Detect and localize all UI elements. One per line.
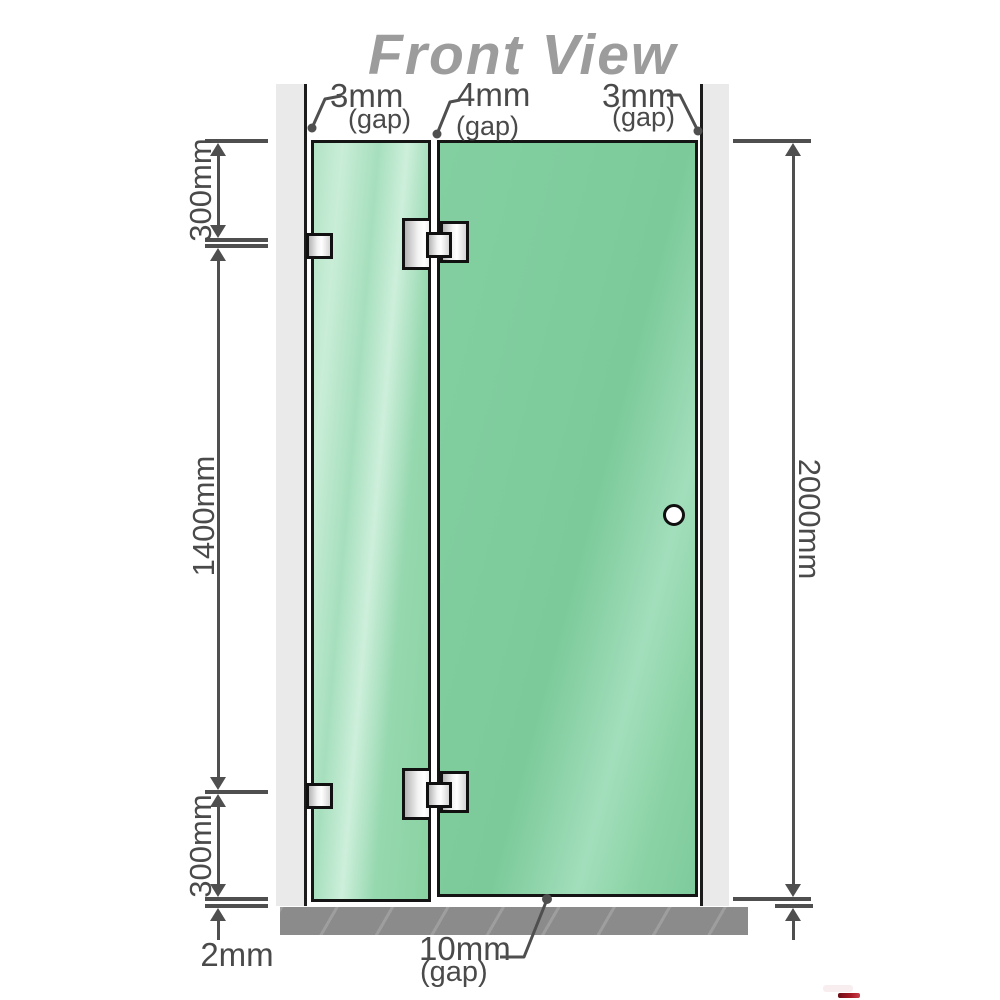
dimension-label-left-upper: 300mm xyxy=(184,125,218,255)
dimension-stem xyxy=(792,918,795,940)
hinge-top-knuckle xyxy=(426,232,452,258)
gap-label-bottom-note: (gap) xyxy=(420,956,488,989)
dimension-label-left-lower: 300mm xyxy=(184,781,218,911)
logo-fragment xyxy=(823,985,853,992)
door-handle-knob xyxy=(663,504,685,526)
glass-gap-through-hinge xyxy=(429,257,439,270)
logo-fragment-red xyxy=(838,993,860,998)
gap-label-top-middle-value: 4mm xyxy=(457,76,530,114)
wall-bracket-bottom xyxy=(306,783,333,809)
dimension-label-left-middle: 1400mm xyxy=(187,436,221,596)
right-wall xyxy=(703,84,729,906)
glass-gap-through-hinge xyxy=(429,768,439,782)
dimension-label-bottom-left: 2mm xyxy=(187,936,287,974)
glass-gap-through-hinge xyxy=(429,807,439,820)
leader-dot xyxy=(308,124,317,133)
gap-label-top-right-note: (gap) xyxy=(612,102,675,133)
gap-label-top-middle-note: (gap) xyxy=(456,111,519,142)
leader-dot xyxy=(433,130,442,139)
gap-label-top-left-note: (gap) xyxy=(348,104,411,135)
dimension-arrow-down xyxy=(785,884,801,897)
dimension-label-right-height: 2000mm xyxy=(792,439,826,599)
glass-gap-through-hinge xyxy=(429,218,439,232)
hinge-bottom-knuckle xyxy=(426,782,452,808)
wall-bracket-top xyxy=(306,233,333,259)
dimension-tick xyxy=(733,897,811,901)
left-wall xyxy=(276,84,304,906)
floor-base xyxy=(280,907,748,935)
front-view-diagram: Front View 300mm 1400mm 300mm 2mm xyxy=(0,0,1000,1000)
door-glass-panel xyxy=(437,140,698,897)
